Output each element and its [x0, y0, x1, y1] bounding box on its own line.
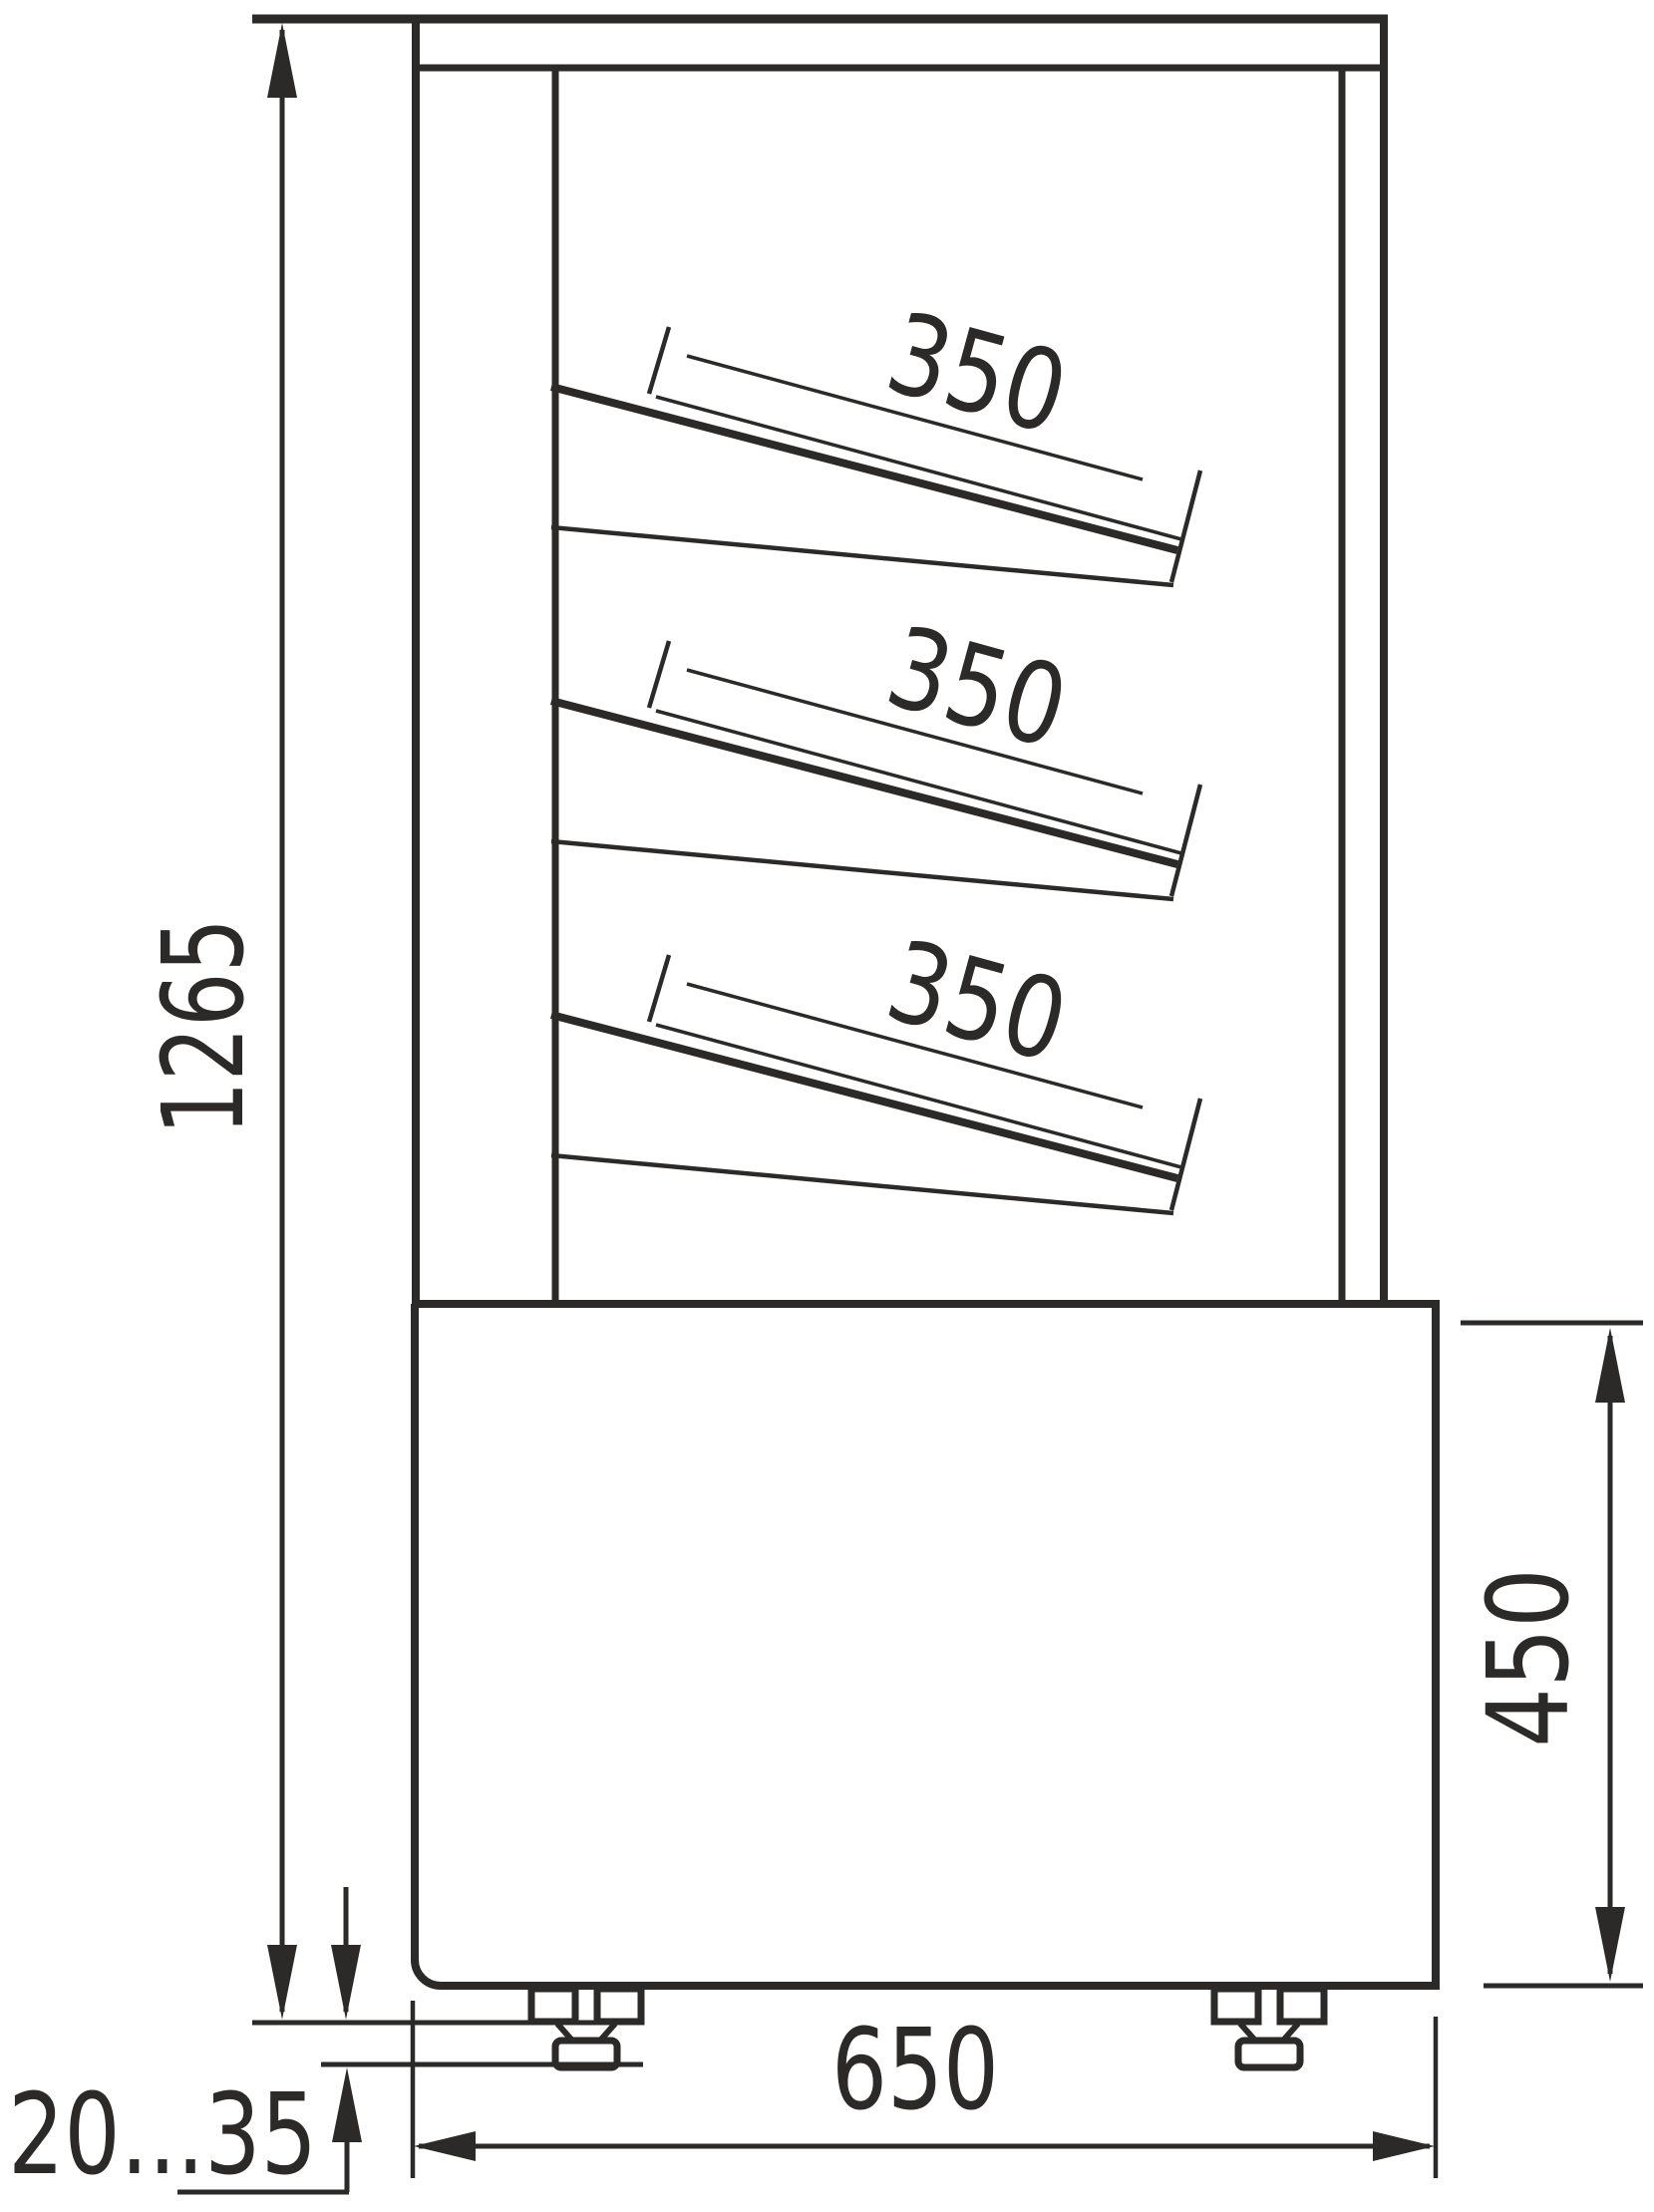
shelf-depth-label: 350 [874, 602, 1080, 774]
shelf-dim-extension-left [649, 955, 669, 1022]
shelf-dim-extension-right [1171, 471, 1200, 582]
arrowhead-right [1373, 2131, 1435, 2161]
shelf-bottom-line [551, 1155, 1173, 1213]
arrowhead-down [267, 1945, 297, 2020]
arrowhead-up [267, 23, 297, 98]
foot-adjust-label: 20...35 [8, 2070, 317, 2200]
arrowhead-down [1595, 1907, 1625, 1982]
shelf-bottom-line [551, 841, 1173, 899]
cabinet-base-section [412, 1304, 1436, 1986]
foot-left [531, 1989, 641, 2067]
dimension-base-depth: 650 [413, 2001, 1436, 2178]
base-depth-label: 650 [831, 2006, 999, 2135]
shelf-top-thick-line [551, 387, 1177, 550]
foot-mount-block-right [1280, 1989, 1324, 2022]
shelf-1: 350 [551, 288, 1200, 585]
shelf-dim-extension-left [649, 327, 669, 394]
base-height-label: 450 [1465, 1568, 1594, 1747]
foot-mount-block-right [597, 1989, 641, 2022]
shelf-top-thick-line [551, 1015, 1177, 1178]
shelf-dim-extension-left [649, 641, 669, 708]
dimension-drawing: 350 350 350 [0, 0, 1654, 2212]
shelf-depth-label: 350 [874, 916, 1080, 1088]
shelf-depth-label: 350 [874, 288, 1080, 460]
foot-pad [1238, 2041, 1300, 2067]
shelf-dim-extension-right [1171, 785, 1200, 896]
shelf-bottom-line [551, 527, 1173, 585]
base-outline [412, 1304, 1436, 1986]
shelf-top-thick-line [551, 701, 1177, 864]
shelf-2: 350 [551, 602, 1200, 899]
arrowhead-up [1595, 1328, 1625, 1403]
overall-height-label: 1265 [140, 918, 269, 1135]
cabinet-upper-section [252, 17, 1388, 1304]
foot-mount-block-left [1214, 1989, 1258, 2022]
shelf-dim-extension-right [1171, 1099, 1200, 1210]
arrowhead-down [331, 1945, 361, 2020]
arrowhead-left [414, 2131, 476, 2161]
foot-mount-block-left [531, 1989, 575, 2022]
drawing-sheet: 350 350 350 [0, 0, 1654, 2212]
dimension-base-height: 450 [1461, 1323, 1643, 1986]
foot-right [1214, 1989, 1324, 2067]
shelf-3: 350 [551, 916, 1200, 1213]
